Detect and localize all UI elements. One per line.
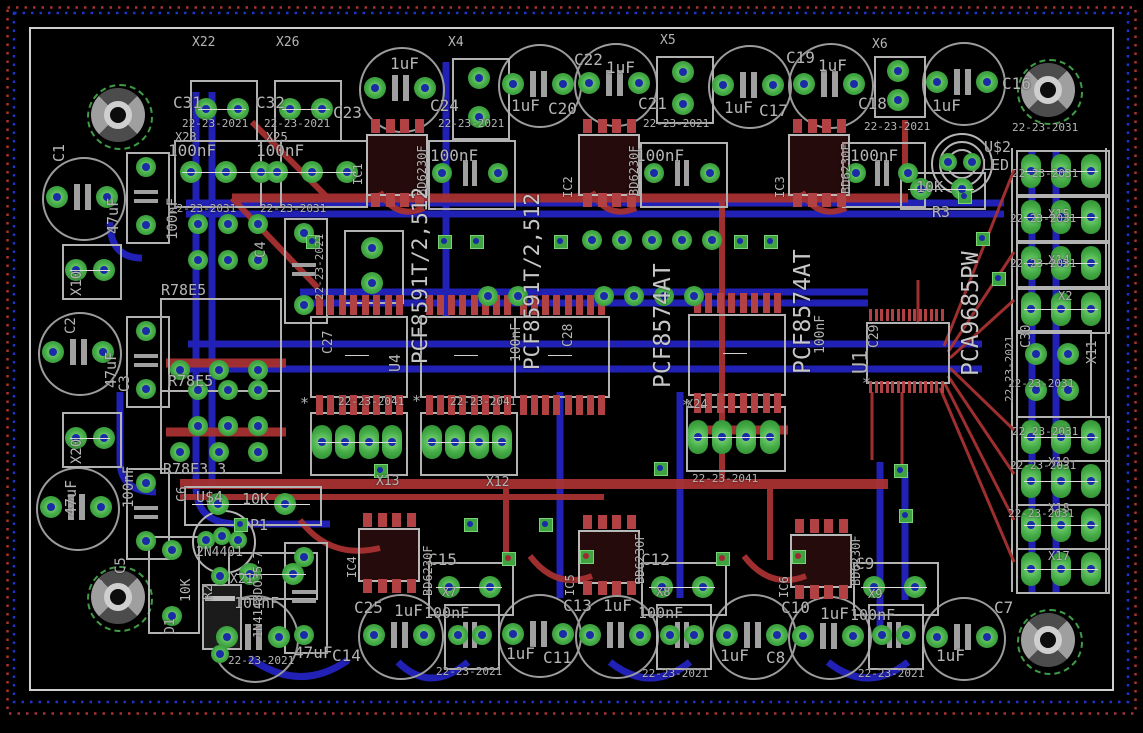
silkscreen-label: X22	[192, 36, 215, 49]
drill-hole	[706, 169, 714, 177]
origin-cross	[345, 355, 369, 356]
cap-electrode	[954, 69, 960, 95]
silk-cross	[1024, 481, 1098, 482]
via-hole	[897, 467, 903, 473]
smd-pin	[385, 295, 392, 315]
smd-pin	[612, 193, 621, 207]
drill-hole	[559, 80, 567, 88]
silkscreen-label: P1	[250, 518, 268, 533]
cap-electrode	[965, 624, 971, 650]
smd-pin	[520, 395, 527, 415]
silkscreen-label: C2	[64, 317, 78, 334]
drill-hole	[690, 631, 698, 639]
silkscreen-label: 1uF	[511, 98, 540, 114]
smd-pin	[763, 293, 770, 313]
silkscreen-label: 1uF	[394, 603, 423, 619]
smd-pin	[763, 393, 770, 413]
smd-pin	[891, 309, 894, 321]
silkscreen-label: X6	[872, 38, 888, 51]
drill-hole	[630, 292, 638, 300]
smd-pin	[795, 585, 804, 599]
drill-hole	[97, 503, 105, 511]
drill-hole	[650, 169, 658, 177]
silkscreen-label: 22-23-2031	[1010, 460, 1076, 471]
smd-pin	[553, 295, 560, 315]
silkscreen-label: X21	[230, 573, 253, 586]
silkscreen-label: U$4	[196, 490, 223, 505]
silkscreen-label: IC1	[352, 163, 364, 185]
silkscreen-label: 100nF	[636, 148, 684, 164]
cap-electrode	[74, 184, 80, 210]
smd-pin	[627, 119, 636, 133]
drill-hole	[800, 80, 808, 88]
smd-pin	[437, 295, 444, 315]
cap-electrode	[134, 363, 158, 367]
silkscreen-label: C7	[994, 600, 1013, 616]
silkscreen-label: U1	[850, 350, 870, 374]
smd-pin	[930, 381, 933, 393]
silkscreen-label: 22-23-2031	[1010, 213, 1076, 224]
cap-electrode	[684, 160, 689, 186]
pcb-editor-canvas[interactable]: pcb-board-layout X22X26X4X5X61uFC221uFC1…	[0, 0, 1143, 733]
drill-hole	[559, 630, 567, 638]
drill-hole	[142, 221, 150, 229]
origin-cross	[548, 355, 572, 356]
silk-cross	[282, 109, 330, 110]
smd-pin	[774, 393, 781, 413]
smd-pin	[913, 309, 916, 321]
silkscreen-label: 1uF	[820, 606, 849, 622]
via-hole	[377, 467, 383, 473]
smd-pin	[327, 395, 334, 415]
cap-electrode	[744, 622, 750, 648]
cap-electrode	[965, 69, 971, 95]
silkscreen-label: C1	[52, 144, 67, 162]
drill-hole	[300, 229, 308, 237]
via-hole	[961, 193, 967, 199]
cap-electrode	[85, 184, 91, 210]
drill-hole	[723, 631, 731, 639]
silkscreen-label: 22-23-2021	[643, 118, 709, 129]
silkscreen-label: *	[300, 396, 309, 411]
drill-hole	[371, 84, 379, 92]
smd-pin	[705, 293, 712, 313]
silkscreen-label: PCF8574AT	[652, 263, 675, 388]
silkscreen-label: U4	[388, 354, 403, 372]
silkscreen-label: PCA9685PW	[960, 251, 983, 376]
silkscreen-label: 22-23-2031	[1010, 258, 1076, 269]
drill-hole	[215, 366, 223, 374]
silk-cross	[318, 442, 396, 443]
drill-hole	[666, 631, 674, 639]
silkscreen-label: C10	[781, 600, 810, 616]
silkscreen-label: C19	[786, 50, 815, 66]
silkscreen-label: 1uF	[506, 646, 535, 662]
cap-electrode	[403, 75, 409, 101]
smd-pin	[908, 381, 911, 393]
smd-pin	[880, 309, 883, 321]
smd-pin	[941, 309, 944, 321]
smd-pin	[919, 381, 922, 393]
smd-pin	[363, 579, 372, 593]
smd-pin	[728, 293, 735, 313]
smd-pin	[913, 381, 916, 393]
cap-electrode	[751, 72, 757, 98]
drill-hole	[635, 79, 643, 87]
silkscreen-label: 22-23-2031	[1012, 122, 1078, 133]
silkscreen-label: 22-23-2021	[642, 668, 708, 679]
drill-hole	[484, 292, 492, 300]
drill-hole	[454, 631, 462, 639]
silkscreen-label: 22-23-2041	[338, 396, 404, 407]
smd-pin	[839, 585, 848, 599]
silk-cross	[198, 109, 246, 110]
smd-pin	[371, 193, 380, 207]
smd-pin	[392, 513, 401, 527]
smd-pin	[448, 295, 455, 315]
cap-electrode	[618, 622, 624, 648]
smd-pin	[740, 393, 747, 413]
silkscreen-label: X8	[656, 586, 670, 598]
cap-electrode	[831, 623, 837, 649]
smd-pin	[437, 395, 444, 415]
via-hole	[473, 238, 479, 244]
silkscreen-label: *	[412, 394, 421, 409]
silkscreen-label: X7	[442, 586, 456, 598]
silk-cross	[694, 437, 774, 438]
silkscreen-label: X10	[70, 271, 84, 296]
smd-pin	[774, 293, 781, 313]
smd-pin	[415, 119, 424, 133]
silkscreen-label: X2	[1058, 290, 1072, 302]
drill-hole	[690, 292, 698, 300]
drill-hole	[678, 236, 686, 244]
drill-hole	[275, 633, 283, 641]
silkscreen-label: U$2	[984, 140, 1011, 155]
drill-hole	[300, 553, 308, 561]
smd-pin	[908, 309, 911, 321]
silkscreen-label: 1uF	[603, 598, 632, 614]
silkscreen-label: IC5	[564, 574, 576, 596]
cap-electrode	[292, 599, 316, 603]
drill-hole	[902, 631, 910, 639]
smd-pin	[869, 309, 872, 321]
smd-pin	[576, 295, 583, 315]
drill-hole	[438, 169, 446, 177]
silkscreen-label: C25	[354, 600, 383, 616]
drill-hole	[142, 537, 150, 545]
smd-pin	[583, 515, 592, 529]
silkscreen-label: 10K	[242, 492, 269, 507]
smd-pin	[902, 309, 905, 321]
drill-hole	[254, 448, 262, 456]
via-hole	[467, 521, 473, 527]
via-hole	[441, 238, 447, 244]
smd-pin	[740, 293, 747, 313]
silkscreen-label: 100nF	[166, 198, 180, 240]
silk-cross	[428, 442, 506, 443]
smd-pin	[627, 515, 636, 529]
cap-electrode	[541, 621, 547, 647]
silkscreen-label: 22-23-2031	[260, 203, 326, 214]
silkscreen-label: 100nF	[256, 143, 304, 159]
drill-hole	[894, 96, 902, 104]
silkscreen-label: C18	[858, 96, 887, 112]
silkscreen-label: R78E3.3	[163, 462, 226, 477]
silkscreen-label: C24	[430, 98, 459, 114]
drill-hole	[983, 78, 991, 86]
smd-pin	[880, 381, 883, 393]
silkscreen-label: X12	[486, 476, 509, 489]
silkscreen-label: X11	[1086, 341, 1099, 364]
smd-pin	[612, 119, 621, 133]
smd-pin	[400, 119, 409, 133]
silk-cross	[1024, 309, 1098, 310]
drill-hole	[194, 220, 202, 228]
silkscreen-label: 1uF	[932, 98, 961, 114]
smd-pin	[459, 295, 466, 315]
silkscreen-label: BD6230F	[850, 535, 862, 586]
drill-hole	[254, 422, 262, 430]
smd-pin	[598, 515, 607, 529]
silkscreen-label: 100nF	[850, 148, 898, 164]
silkscreen-label: IC3	[774, 176, 786, 198]
silkscreen-label: X13	[376, 475, 399, 488]
smd-pin	[875, 381, 878, 393]
smd-pin	[891, 381, 894, 393]
silkscreen-label: BD6230F	[422, 545, 434, 596]
silkscreen-label: 10K	[180, 579, 193, 602]
silkscreen-label: C27	[322, 331, 335, 354]
smd-pin	[793, 193, 802, 207]
via-hole	[505, 555, 511, 561]
silkscreen-label: X9	[868, 588, 882, 600]
smd-pin	[542, 395, 549, 415]
silkscreen-label: X26	[276, 36, 299, 49]
soic16-[interactable]	[420, 316, 516, 398]
smd-pin	[327, 295, 334, 315]
silkscreen-label: C6	[176, 486, 189, 502]
smd-pin	[837, 193, 846, 207]
drill-hole	[648, 236, 656, 244]
drill-hole	[368, 244, 376, 252]
smd-pin	[471, 295, 478, 315]
cap-electrode	[392, 75, 398, 101]
drill-hole	[849, 632, 857, 640]
silkscreen-label: C20	[548, 101, 577, 117]
drill-hole	[216, 572, 224, 580]
smd-pin	[728, 393, 735, 413]
drill-hole	[224, 220, 232, 228]
silkscreen-label: BD6230F	[840, 143, 852, 194]
smd-pin	[392, 579, 401, 593]
silk-cross	[268, 172, 356, 173]
silkscreen-label: C11	[543, 650, 572, 666]
smd-pin	[362, 295, 369, 315]
smd-pin	[373, 295, 380, 315]
smd-pin	[407, 579, 416, 593]
cap-electrode	[134, 190, 158, 194]
drill-hole	[904, 169, 912, 177]
smd-pin	[396, 295, 403, 315]
drill-hole	[142, 163, 150, 171]
mounting-hole-ring	[104, 583, 132, 611]
silkscreen-label: 22-23-2041	[450, 396, 516, 407]
silkscreen-label: 22-23-2021	[438, 118, 504, 129]
silkscreen-label: PCF8591T/2,512	[522, 193, 543, 370]
silkscreen-label: 2N4401	[196, 546, 243, 559]
drill-hole	[168, 546, 176, 554]
silkscreen-label: 100nF	[424, 606, 469, 621]
drill-hole	[300, 301, 308, 309]
cap-electrode	[740, 72, 746, 98]
silkscreen-label: 1uF	[724, 100, 753, 116]
smd-pin	[407, 513, 416, 527]
soic8-IC4[interactable]	[358, 528, 420, 582]
cap-electrode	[755, 622, 761, 648]
drill-hole	[708, 236, 716, 244]
smd-pin	[598, 581, 607, 595]
via-hole	[542, 521, 548, 527]
drill-hole	[769, 81, 777, 89]
silkscreen-label: 22-23-2021	[864, 121, 930, 132]
silkscreen-label: D1	[164, 618, 177, 634]
smd-pin	[824, 585, 833, 599]
drill-hole	[600, 292, 608, 300]
mounting-hole-ring	[1034, 76, 1062, 104]
smd-pin	[808, 193, 817, 207]
silkscreen-label: BD6230F	[634, 533, 646, 584]
cap-electrode	[530, 71, 536, 97]
smd-pin	[822, 193, 831, 207]
silkscreen-label: 100nF	[850, 608, 895, 623]
silkscreen-label: C5	[114, 557, 128, 574]
drill-hole	[494, 169, 502, 177]
smd-pin	[583, 581, 592, 595]
smd-pin	[839, 519, 848, 533]
drill-hole	[475, 74, 483, 82]
silkscreen-label: 22-23-2031	[1012, 426, 1078, 437]
smd-pin	[339, 295, 346, 315]
drill-hole	[194, 256, 202, 264]
silkscreen-label: 22-23-2021	[314, 234, 325, 300]
silkscreen-label: 1uF	[606, 60, 635, 76]
silkscreen-label: 47uF	[64, 480, 79, 516]
smd-pin	[386, 119, 395, 133]
silkscreen-label: C4	[254, 241, 268, 258]
silkscreen-label: X17	[1048, 550, 1070, 562]
cap-electrode	[541, 71, 547, 97]
smd-pin	[598, 193, 607, 207]
smd-pin	[924, 309, 927, 321]
silkscreen-label: 22-23-2021	[436, 666, 502, 677]
silkscreen-label: PCF8591T/2,512	[410, 187, 431, 364]
smd-pin	[924, 381, 927, 393]
smd-pin	[822, 119, 831, 133]
via-hole	[237, 521, 243, 527]
drill-hole	[254, 220, 262, 228]
mounting-hole-ring	[1034, 626, 1062, 654]
silkscreen-label: X20	[70, 439, 84, 464]
drill-hole	[679, 68, 687, 76]
smd-pin	[717, 393, 724, 413]
smd-pin	[583, 119, 592, 133]
smd-pin	[808, 119, 817, 133]
silkscreen-label: 47uF	[106, 198, 121, 234]
silkscreen-label: 22-23-2021	[264, 118, 330, 129]
smd-pin	[612, 581, 621, 595]
smd-pin	[378, 579, 387, 593]
smd-pin	[935, 309, 938, 321]
silkscreen-label: C13	[563, 598, 592, 614]
drill-hole	[968, 158, 976, 166]
silkscreen-label: X4	[448, 36, 464, 49]
smd-pin	[897, 381, 900, 393]
silk-cross	[1024, 525, 1098, 526]
smd-pin	[919, 309, 922, 321]
silkscreen-label: C31	[173, 95, 202, 111]
silkscreen-label: C3	[118, 375, 132, 392]
silk-cross	[182, 172, 270, 173]
smd-pin	[751, 293, 758, 313]
silkscreen-label: 1N4148DO35-7	[252, 551, 264, 638]
smd-pin	[371, 119, 380, 133]
silkscreen-label: *	[682, 398, 691, 413]
smd-pin	[587, 395, 594, 415]
smd-pin	[810, 585, 819, 599]
silkscreen-label: PCF8574AT	[792, 249, 815, 374]
drill-hole	[218, 532, 226, 540]
smd-pin	[565, 395, 572, 415]
smd-pin	[576, 395, 583, 415]
soic16-[interactable]	[688, 314, 786, 396]
smd-pin	[902, 381, 905, 393]
via-hole	[737, 238, 743, 244]
cap-electrode	[134, 199, 158, 203]
silkscreen-label: IC2	[562, 176, 574, 198]
cap-electrode	[134, 354, 158, 358]
cap-electrode	[292, 590, 316, 594]
cap-electrode	[81, 339, 87, 365]
smd-pin	[935, 381, 938, 393]
smd-pin	[363, 513, 372, 527]
via-hole	[995, 275, 1001, 281]
drill-hole	[194, 422, 202, 430]
drill-hole	[300, 631, 308, 639]
via-hole	[902, 512, 908, 518]
via-hole	[767, 238, 773, 244]
smd-pin	[793, 119, 802, 133]
cap-electrode	[134, 506, 158, 510]
silkscreen-label: C16	[1002, 76, 1031, 92]
silkscreen-label: LED	[982, 158, 1009, 173]
silkscreen-label: C22	[574, 52, 603, 68]
silkscreen-label: 47uF	[294, 645, 333, 661]
silkscreen-label: 22-23-2031	[1008, 378, 1074, 389]
silkscreen-label: 22-23-2021	[182, 118, 248, 129]
silkscreen-label: C23	[333, 105, 362, 121]
drill-hole	[1064, 350, 1072, 358]
via-hole	[583, 553, 589, 559]
smd-pin	[930, 309, 933, 321]
drill-hole	[368, 279, 376, 287]
silkscreen-label: C17	[759, 103, 788, 119]
silkscreen-label: 10K	[916, 180, 943, 195]
smd-pin	[386, 193, 395, 207]
smd-pin	[810, 519, 819, 533]
silkscreen-label: R78E5	[161, 283, 206, 298]
smd-pin	[378, 513, 387, 527]
